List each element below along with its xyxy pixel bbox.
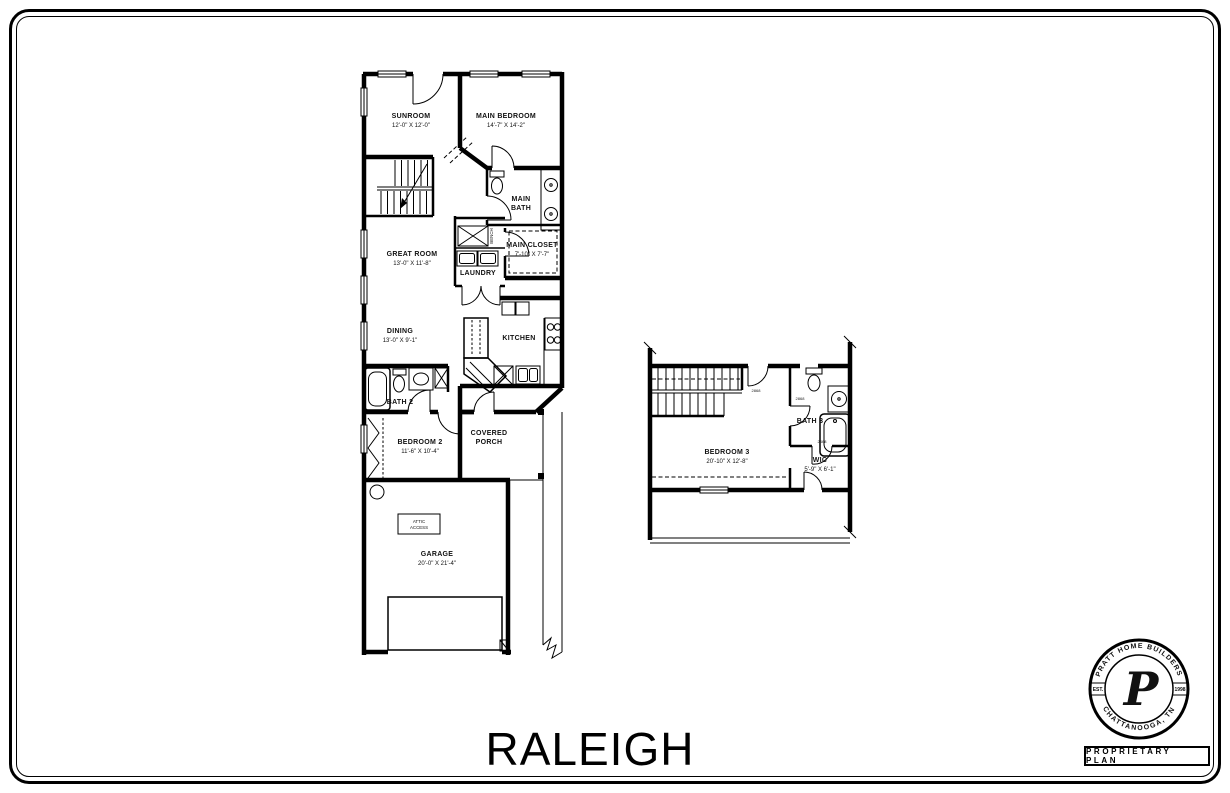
second-floor-stairs <box>650 366 742 416</box>
dims-bedroom2: 11'-6" X 10'-4" <box>401 449 438 455</box>
label-main-bath-1: MAIN <box>511 196 530 203</box>
builder-logo-seal: PRATT HOME BUILDERS CHATTANOOGA, TN EST.… <box>1087 637 1191 741</box>
first-floor-interior-walls <box>363 74 562 655</box>
first-floor-plan: SUNROOM 12'-0" X 12'-0" MAIN BEDROOM 14'… <box>361 71 562 658</box>
dims-main-closet: 7'-10" X 7'-7" <box>515 252 550 258</box>
label-attic-access-2: ACCESS <box>410 525 428 530</box>
label-kitchen: KITCHEN <box>502 335 535 342</box>
label-bedroom3: BEDROOM 3 <box>704 449 749 456</box>
label-bath3: BATH 3 <box>797 418 824 425</box>
logo-year-text: 1998 <box>1174 687 1185 693</box>
door-tag-2: 2868 <box>796 396 806 401</box>
plan-sheet: SUNROOM 12'-0" X 12'-0" MAIN BEDROOM 14'… <box>0 0 1230 793</box>
dims-dining: 13'-0" X 9'-1" <box>383 338 418 344</box>
label-laundry: LAUNDRY <box>460 270 496 277</box>
dims-wic: 5'-9" X 6'-1" <box>804 467 835 473</box>
dims-garage: 20'-0" X 21'-4" <box>418 561 456 567</box>
label-bath2: BATH 2 <box>387 399 414 406</box>
label-sunroom: SUNROOM <box>392 113 431 120</box>
label-main-closet: MAIN CLOSET <box>506 242 558 249</box>
label-attic-access-1: ATTIC <box>413 519 425 524</box>
first-floor-stairs <box>377 160 433 214</box>
driveway-walk-lines <box>543 412 562 658</box>
bedroom2-closet <box>368 418 383 478</box>
dims-bedroom3: 20'-10" X 12'-8" <box>706 459 747 465</box>
label-bedroom2: BEDROOM 2 <box>397 439 442 446</box>
proprietary-plan-plate: PROPRIETARY PLAN <box>1084 746 1210 766</box>
label-covered-porch-2: PORCH <box>476 439 503 446</box>
floor-plan-drawing: SUNROOM 12'-0" X 12'-0" MAIN BEDROOM 14'… <box>0 0 1230 793</box>
dims-sunroom: 12'-0" X 12'-0" <box>392 123 430 129</box>
label-dining: DINING <box>387 328 414 335</box>
label-main-bath-2: BATH <box>511 205 531 212</box>
first-floor-exterior-walls <box>363 72 562 655</box>
label-covered-porch-1: COVERED <box>471 430 508 437</box>
label-bench: BENCH <box>489 228 494 243</box>
dims-main-bedroom: 14'-7" X 14'-2" <box>487 123 525 129</box>
plan-title: RALEIGH <box>440 722 740 776</box>
label-great-room: GREAT ROOM <box>387 251 438 258</box>
logo-monogram: P <box>1122 662 1160 716</box>
first-floor-labels: SUNROOM 12'-0" X 12'-0" MAIN BEDROOM 14'… <box>383 113 558 567</box>
door-tag-1: 2868 <box>752 388 762 393</box>
bath3-fixtures <box>806 368 850 456</box>
kitchen-fixtures <box>464 302 562 392</box>
logo-est-text: EST. <box>1093 687 1104 693</box>
label-wic: WIC <box>813 457 828 464</box>
second-floor-plan: BEDROOM 3 20'-10" X 12'-8" BATH 3 WIC 5'… <box>644 336 856 543</box>
dims-great-room: 13'-0" X 11'-8" <box>393 261 430 267</box>
covered-porch-slab <box>510 409 544 480</box>
door-tag-3: 2468 <box>818 439 828 444</box>
garage-fixtures <box>370 485 509 651</box>
label-main-bedroom: MAIN BEDROOM <box>476 113 536 120</box>
label-garage: GARAGE <box>421 551 454 558</box>
